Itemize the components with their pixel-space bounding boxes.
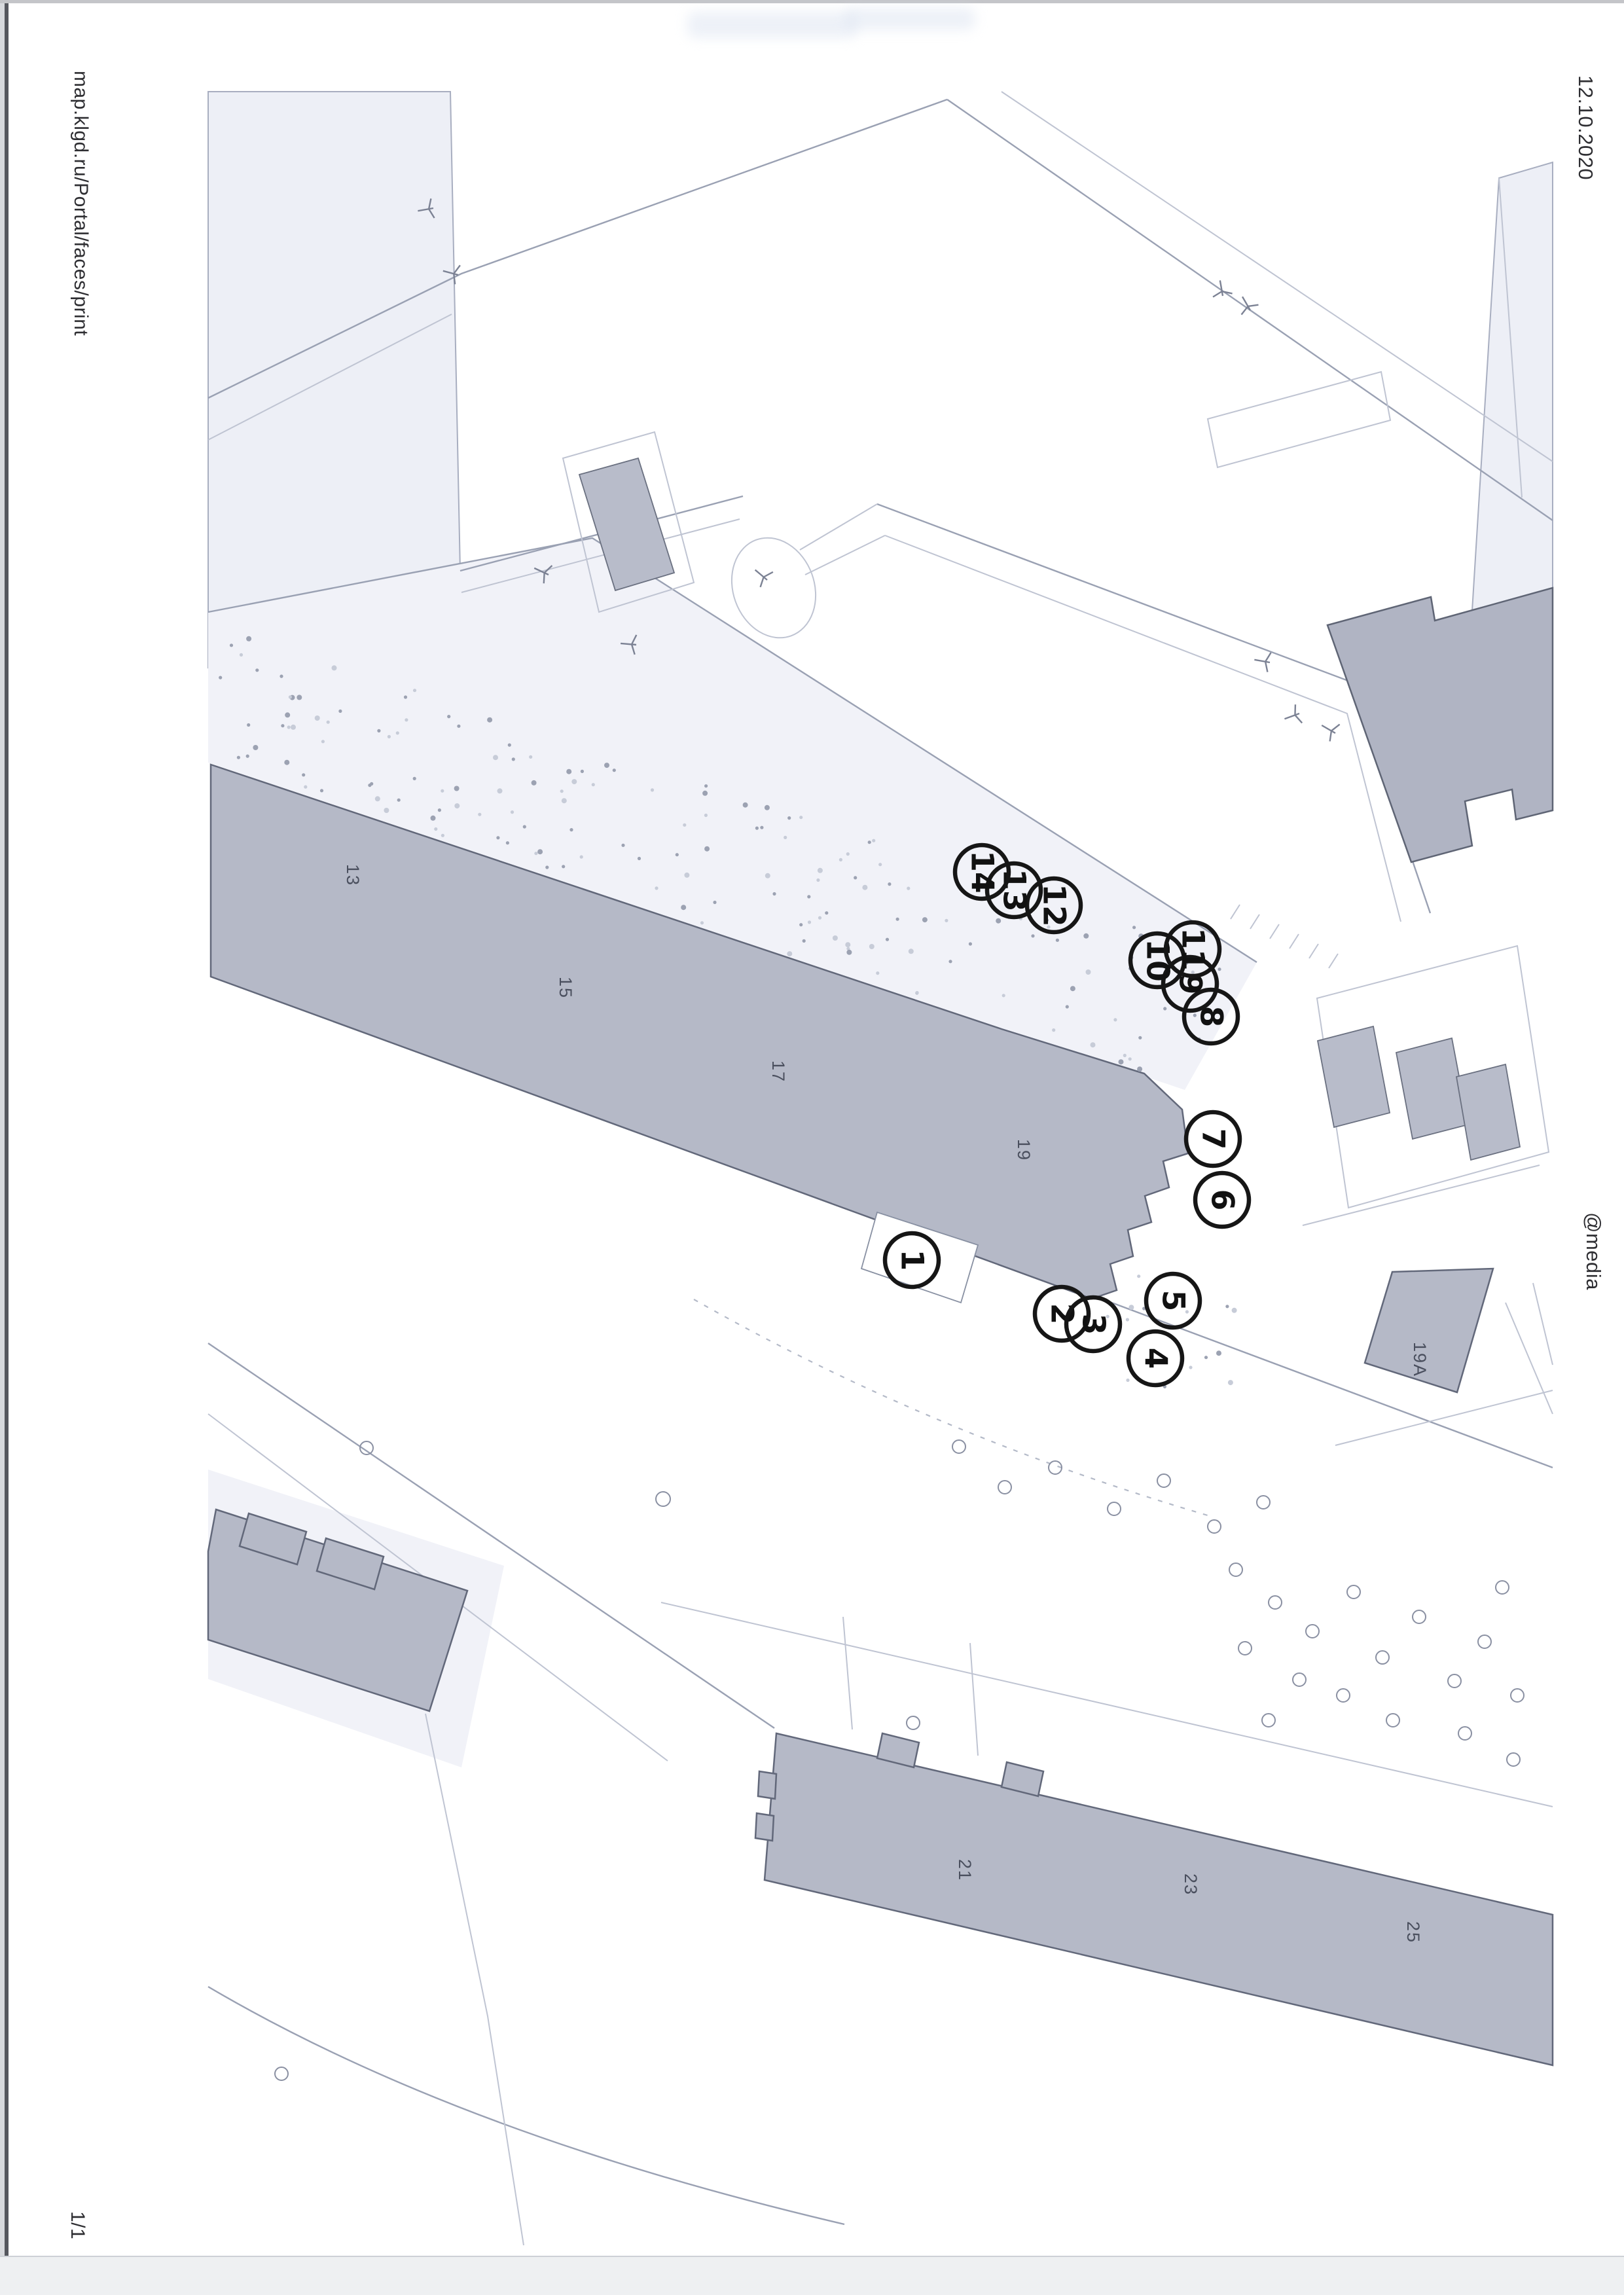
- map-marker-7: 7: [1186, 1112, 1240, 1166]
- building-label-23: 23: [1181, 1873, 1200, 1896]
- garage-building: [1456, 1064, 1520, 1160]
- building-top-right: [1327, 588, 1553, 862]
- marker-number: 5: [1155, 1290, 1191, 1312]
- footpath-dashed: [694, 1299, 1208, 1515]
- road-line: [1001, 92, 1553, 461]
- garage-building: [1396, 1038, 1468, 1139]
- map-marker-6: 6: [1195, 1173, 1249, 1227]
- marker-number: 3: [1075, 1314, 1111, 1335]
- map-marker-5: 5: [1146, 1274, 1200, 1328]
- road-line: [800, 504, 885, 575]
- scanned-print-page: map.klgd.ru/Portal/faces/print 12.10.202…: [0, 0, 1624, 2295]
- marker-number: 4: [1138, 1348, 1174, 1369]
- scan-smudge: [687, 12, 857, 38]
- building-21-25: [765, 1733, 1553, 2065]
- building-label-17: 17: [768, 1060, 788, 1083]
- scan-smudge: [844, 8, 975, 30]
- print-url-label: map.klgd.ru/Portal/faces/print: [69, 71, 92, 336]
- road-line: [1506, 1283, 1553, 1414]
- building-label-13: 13: [343, 864, 363, 886]
- road-line: [208, 1987, 844, 2224]
- page-number-label: 1/1: [66, 2211, 88, 2239]
- marker-number: 14: [964, 850, 1000, 893]
- marker-number: 1: [894, 1250, 930, 1271]
- building-porch: [758, 1771, 776, 1799]
- road-line: [425, 1714, 524, 2245]
- building-label-19А: 19А: [1410, 1342, 1430, 1377]
- scan-edge-left-dark: [5, 0, 9, 2295]
- media-watermark-label: @media: [1581, 1212, 1605, 1290]
- print-date-label: 12.10.2020: [1574, 75, 1597, 180]
- building-label-25: 25: [1403, 1921, 1423, 1943]
- road-line: [843, 1617, 978, 1756]
- marker-number: 7: [1195, 1129, 1231, 1150]
- building-label-19: 19: [1014, 1139, 1034, 1161]
- map-marker-4: 4: [1128, 1331, 1182, 1385]
- scan-edge-top: [0, 0, 1624, 3]
- building-porch: [755, 1813, 774, 1841]
- site-map: 1315171919А212325 1234567891011121314: [0, 0, 1624, 2295]
- scan-edge-left-light: [0, 0, 5, 2295]
- garage-building: [1318, 1026, 1390, 1127]
- marker-number: 6: [1204, 1189, 1240, 1211]
- scan-edge-bottom: [0, 2256, 1624, 2295]
- building-label-21: 21: [955, 1859, 975, 1881]
- marker-number: 11: [1175, 928, 1211, 970]
- outbuilding-outline: [1208, 372, 1390, 467]
- road-line: [1303, 1165, 1540, 1225]
- building-label-15: 15: [556, 977, 575, 999]
